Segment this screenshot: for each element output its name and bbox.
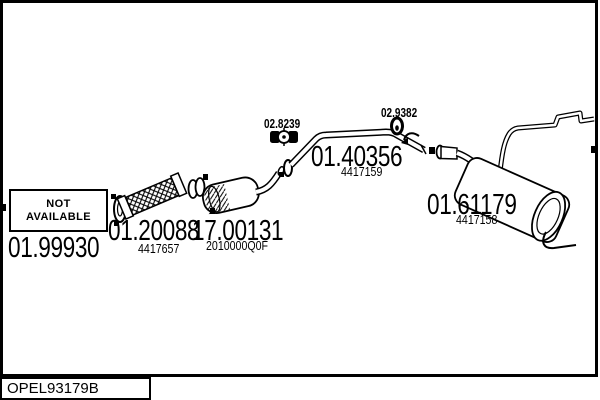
tail-pipe-drawing — [500, 113, 594, 172]
part-number-front-pipe[interactable]: 01.99930 — [8, 234, 99, 263]
part-number-hanger[interactable]: 02.9382 — [381, 107, 417, 120]
part-ref-catalyst: 2010000Q0F — [206, 240, 268, 253]
flex-pipe-drawing — [117, 173, 186, 219]
part-ref-middle-pipe: 4417159 — [341, 166, 382, 179]
not-available-box: NOT AVAILABLE — [9, 189, 108, 232]
not-available-line2: AVAILABLE — [26, 211, 91, 224]
part-ref-rear-muffler: 4417158 — [456, 214, 497, 227]
catalog-code: OPEL93179B — [7, 380, 99, 397]
catalog-code-box: OPEL93179B — [0, 377, 151, 400]
rear-muffler-drawing — [437, 113, 595, 248]
chassis-marker-right-icon — [591, 146, 597, 153]
part-ref-flex-pipe: 4417657 — [138, 243, 179, 256]
catalyst-drawing — [189, 166, 285, 216]
gasket-drawing — [429, 147, 435, 154]
part-number-clamp[interactable]: 02.8239 — [264, 118, 300, 131]
rubber-hanger-icon — [392, 118, 403, 134]
not-available-line1: NOT — [46, 198, 70, 211]
exhaust-catalog-page: NOT AVAILABLE 01.99930 01.20088 4417657 … — [0, 0, 600, 400]
chassis-marker-left-icon — [1, 204, 6, 211]
